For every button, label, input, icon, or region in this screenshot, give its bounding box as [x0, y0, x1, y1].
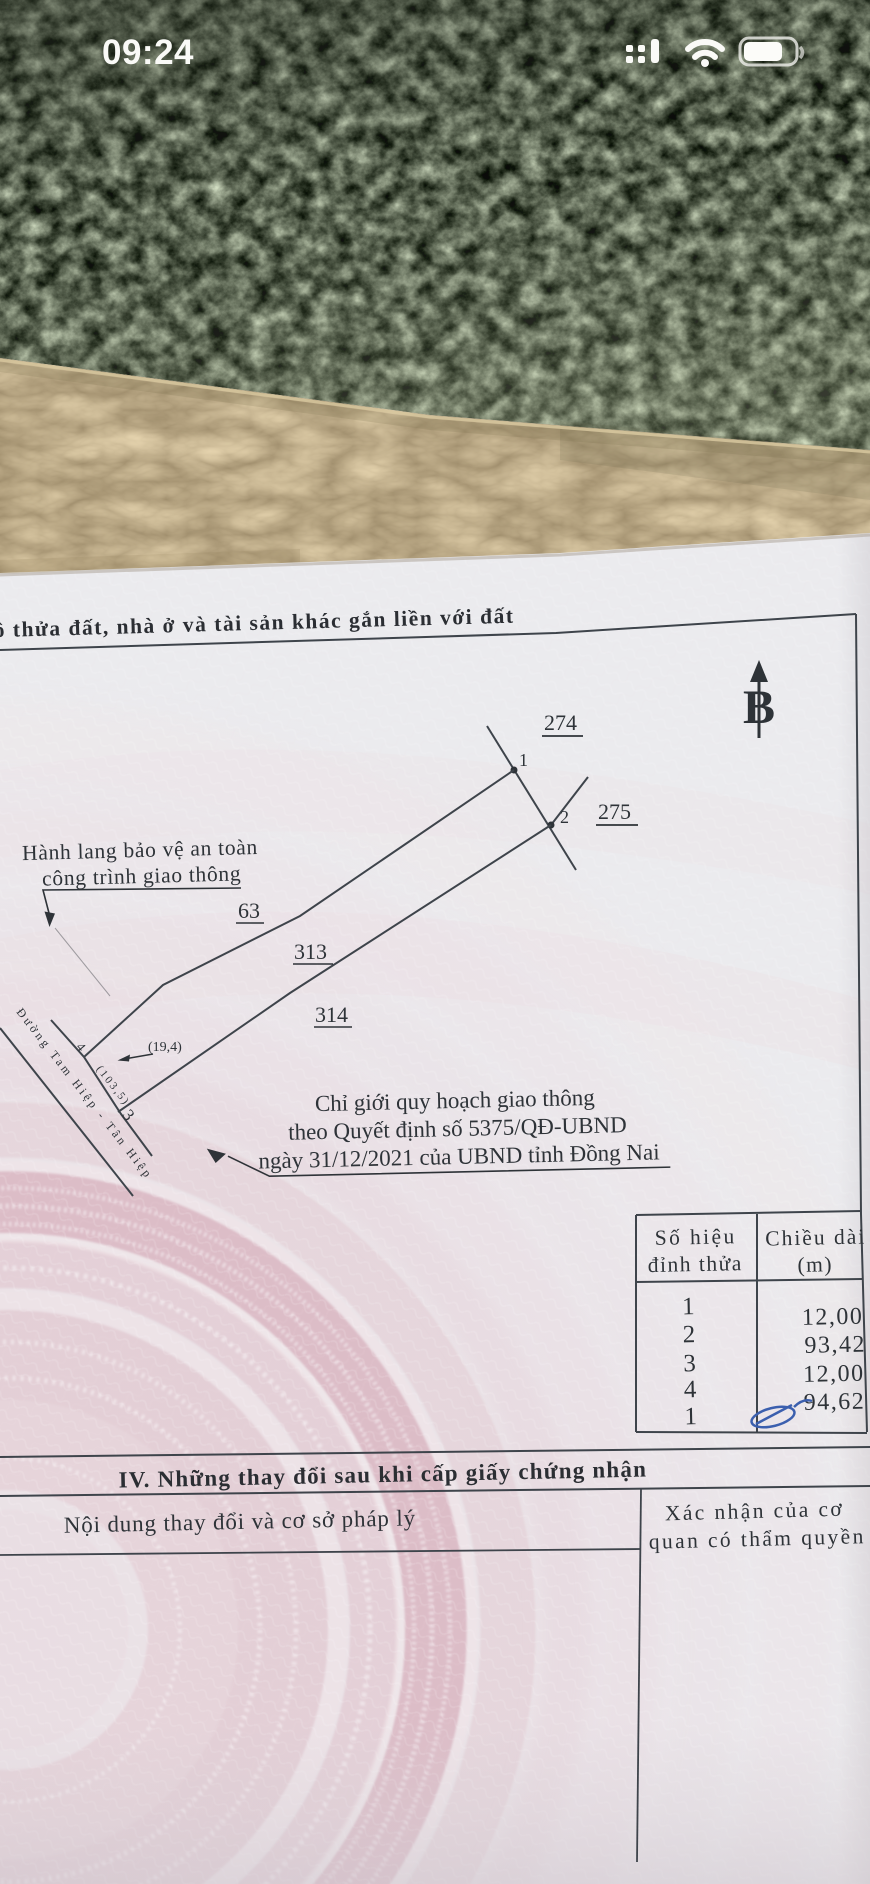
svg-text:2: 2 [560, 807, 569, 827]
svg-text:(m): (m) [797, 1252, 833, 1277]
svg-text:275: 275 [598, 799, 631, 824]
svg-text:63: 63 [238, 898, 260, 923]
svg-text:3: 3 [683, 1350, 698, 1377]
svg-text:09:24: 09:24 [102, 33, 194, 72]
svg-text:Số hiệu: Số hiệu [654, 1224, 736, 1250]
svg-text:313: 313 [294, 939, 327, 964]
svg-text:1: 1 [519, 750, 528, 770]
svg-text:94,62: 94,62 [803, 1389, 865, 1416]
svg-text:12,00: 12,00 [802, 1304, 864, 1331]
svg-text:12,00: 12,00 [803, 1361, 865, 1388]
svg-text:4: 4 [684, 1376, 699, 1403]
svg-text:đỉnh thửa: đỉnh thửa [647, 1251, 743, 1277]
svg-text:2: 2 [682, 1321, 697, 1348]
svg-text:1: 1 [682, 1293, 697, 1320]
svg-text:B: B [743, 681, 775, 734]
svg-text:(19,4): (19,4) [148, 1040, 182, 1055]
svg-text:93,42: 93,42 [804, 1332, 866, 1359]
svg-text:Xác nhận của cơ: Xác nhận của cơ [665, 1497, 845, 1526]
svg-text:274: 274 [544, 710, 577, 735]
svg-text:314: 314 [315, 1002, 348, 1027]
svg-text:1: 1 [684, 1403, 699, 1430]
svg-text:Chiều dài: Chiều dài [765, 1225, 866, 1251]
